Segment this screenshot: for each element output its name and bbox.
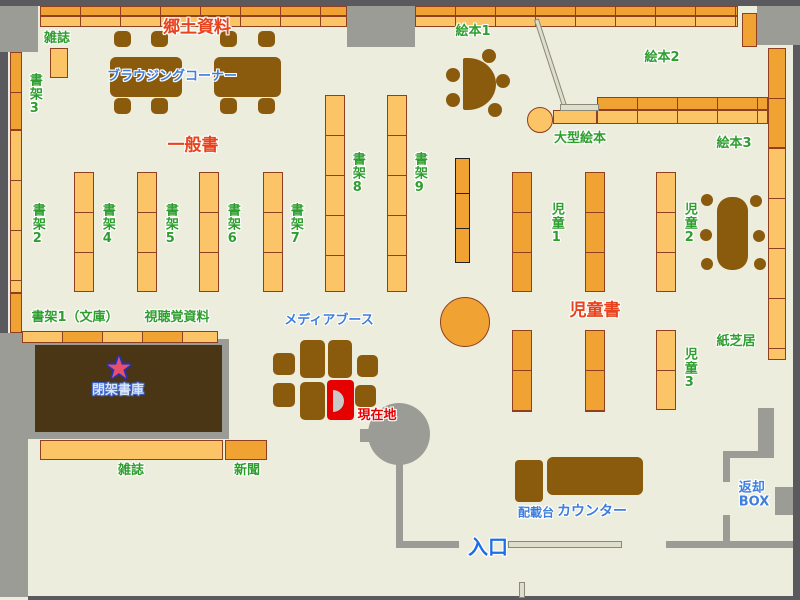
label-children-2: 児童2 (682, 202, 696, 246)
label-shelf-4: 書架4 (100, 203, 114, 247)
diagonal-partition (534, 18, 568, 109)
left-wall-shelf-lower (10, 293, 22, 333)
label-return-box: 返却 BOX (739, 482, 770, 511)
label-shelf-3: 書架3 (27, 73, 41, 117)
stool (701, 194, 713, 206)
right-wall-shelf-upper (768, 48, 786, 148)
label-children-1: 児童1 (549, 202, 563, 246)
chair (151, 98, 168, 114)
chair (220, 98, 237, 114)
stool (754, 258, 766, 270)
label-general-books: 一般書 (168, 137, 219, 156)
children-shelf-column-d (512, 330, 532, 412)
label-magazines-top: 雑誌 (44, 32, 70, 46)
outer-door (519, 582, 525, 598)
media-booth-seat (357, 355, 378, 377)
delivery-stand (515, 460, 543, 502)
label-large-picture-books: 大型絵本 (554, 132, 606, 146)
label-shelf-1-bunko: 書架1（文庫） (31, 311, 118, 325)
wall-top-right-corner (757, 6, 800, 45)
chair (114, 98, 131, 114)
left-wall-shelf-middle (10, 130, 22, 293)
label-kamishibai: 紙芝居 (716, 335, 755, 349)
shelf-column-4 (74, 172, 94, 292)
entrance-door (508, 541, 622, 548)
children-shelf-column-b (585, 172, 605, 292)
left-wall-shelf-upper (10, 52, 22, 130)
label-delivery-stand: 配載台 (518, 506, 554, 519)
library-floor-map: ★ 雑誌 絵本1 絵本2 絵本3 大型絵本 紙芝居 書架1（文庫） 視聴覚資料 … (0, 0, 800, 600)
shelf-column-9 (387, 95, 407, 292)
picture-book-wall-shelf-back (597, 97, 768, 110)
star-icon: ★ (106, 354, 133, 384)
top-right-corner-shelf (742, 13, 757, 47)
label-picture-books-2: 絵本2 (644, 51, 679, 65)
bunko-shelf-dark-seg-1 (62, 331, 103, 343)
wall-top-left-corner (0, 6, 38, 52)
media-booth (328, 340, 352, 378)
label-magazines-bottom: 雑誌 (118, 464, 144, 478)
partition-segment (560, 104, 599, 111)
children-shelf-column-c (656, 172, 676, 292)
stool (700, 229, 712, 241)
label-local-history: 郷土資料 (163, 19, 231, 38)
label-av-materials: 視聴覚資料 (144, 311, 209, 325)
label-picture-books-1: 絵本1 (455, 25, 490, 39)
media-booth (300, 382, 325, 420)
media-booth-seat (355, 385, 376, 407)
chair (258, 98, 275, 114)
label-shelf-9: 書架9 (412, 152, 426, 196)
children-shelf-column-f (656, 330, 676, 410)
label-shelf-6: 書架6 (225, 203, 239, 247)
media-booth-seat (273, 383, 295, 407)
wall-top-pillar (347, 6, 415, 47)
return-box-wall-left-upper (723, 451, 730, 482)
label-return-box-line1: 返却 (739, 482, 770, 496)
wall-right-border (793, 6, 800, 600)
label-counter: カウンター (557, 504, 627, 519)
bunko-av-shelf-row (22, 331, 218, 343)
stool (446, 93, 460, 107)
children-shelf-column-a (512, 172, 532, 292)
large-picture-book-stand (527, 107, 553, 133)
return-box-wall-bottom (666, 541, 793, 548)
label-shelf-5: 書架5 (163, 203, 177, 247)
wall-bottom-border (28, 596, 800, 600)
newspaper-shelf (225, 440, 267, 460)
return-box-wall-tab (775, 487, 793, 515)
media-booth-seat (273, 353, 295, 375)
entrance-wall-vertical (396, 463, 403, 543)
shelf-column-6 (199, 172, 219, 292)
label-current-location: 現在地 (357, 409, 396, 423)
stool (701, 258, 713, 270)
counter-desk (547, 457, 643, 495)
label-children-books: 児童書 (570, 302, 621, 321)
right-wall-shelf-lower (768, 148, 786, 360)
shelf-column-7 (263, 172, 283, 292)
label-return-box-line2: BOX (739, 496, 770, 510)
stool (482, 49, 496, 63)
picture-book-shelf-end (553, 110, 597, 124)
stool (446, 68, 460, 82)
stool (496, 74, 510, 88)
stool (488, 103, 502, 117)
label-picture-books-3: 絵本3 (716, 137, 751, 151)
label-children-3: 児童3 (682, 347, 696, 391)
chair (258, 31, 275, 47)
top-wall-shelf-right-back (415, 6, 738, 16)
center-narrow-shelf (455, 158, 470, 263)
stool (750, 195, 762, 207)
entrance-wall-horizontal (396, 541, 459, 548)
top-wall-shelf-left-back (40, 6, 347, 16)
label-newspapers: 新聞 (234, 464, 260, 478)
stool (753, 230, 765, 242)
chair (114, 31, 131, 47)
label-shelf-8: 書架8 (350, 152, 364, 196)
children-shelf-column-e (585, 330, 605, 412)
magazine-stand-top (50, 48, 68, 78)
storytime-table (463, 58, 496, 110)
picture-book-wall-shelf-front (597, 110, 768, 124)
label-shelf-7: 書架7 (288, 203, 302, 247)
label-entrance: 入口 (468, 536, 508, 558)
label-browsing-corner: ブラウジングコーナー (107, 70, 237, 84)
magazine-shelf-bottom (40, 440, 223, 460)
label-closed-stacks: 閉架書庫 (92, 384, 144, 398)
shelf-column-5 (137, 172, 157, 292)
pillar-tab (360, 429, 370, 442)
shelf-column-8 (325, 95, 345, 292)
wall-left-lower (0, 333, 28, 597)
round-table (440, 297, 490, 347)
label-media-booth: メディアブース (284, 314, 373, 328)
media-booth (300, 340, 325, 378)
label-shelf-2: 書架2 (30, 203, 44, 247)
children-table (717, 197, 748, 270)
bunko-shelf-dark-seg-2 (142, 331, 183, 343)
